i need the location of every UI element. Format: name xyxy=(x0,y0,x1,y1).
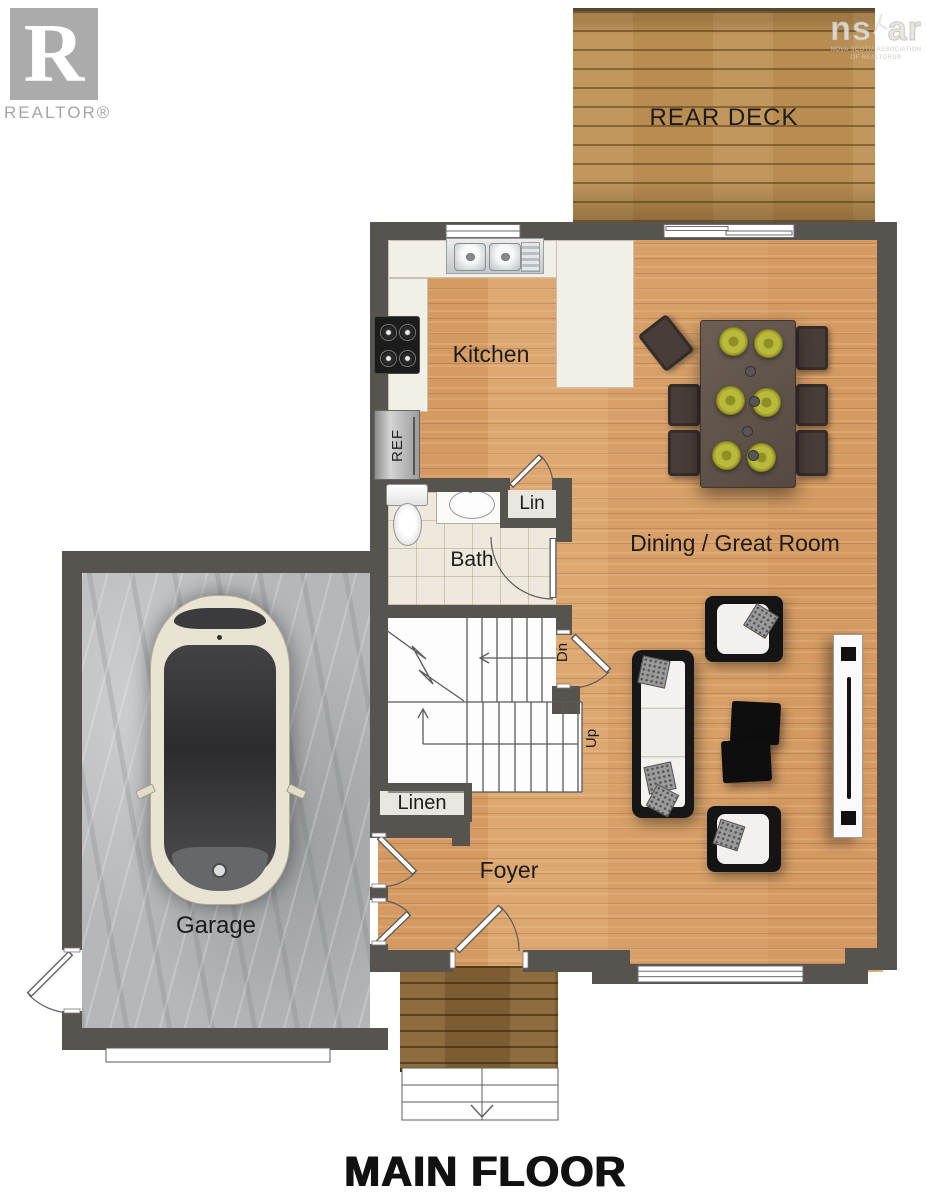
nsar-ns: ns xyxy=(830,10,872,48)
stairs-up-arrow-icon xyxy=(418,709,578,744)
floor-plan: R REALTOR® REAR DECK nsar NOVA SCOTIA AS… xyxy=(0,0,927,1200)
stairs-down-arrow-icon xyxy=(480,653,556,663)
stairs-up-label: Up xyxy=(578,730,606,764)
nsar-caption-1: NOVA SCOTIA ASSOCIATION xyxy=(826,47,926,54)
doors xyxy=(29,456,609,1013)
plan-linework xyxy=(0,0,927,1200)
room-label-dining-great-room: Dining / Great Room xyxy=(620,530,850,557)
stairs-down-label: Dn xyxy=(549,644,577,678)
nsar-caption-2: OF REALTORS® xyxy=(826,55,926,62)
greatroom-window xyxy=(638,966,803,982)
room-label-garage: Garage xyxy=(156,912,276,940)
garage-door xyxy=(106,1048,330,1062)
kitchen-window xyxy=(446,225,520,238)
front-door xyxy=(457,907,519,951)
nsar-logo: nsar xyxy=(826,12,926,46)
room-label-linen: Linen xyxy=(380,792,464,815)
realtor-logo: R xyxy=(10,8,98,100)
garage-side-door xyxy=(29,953,71,1013)
realtor-monogram-icon: R xyxy=(24,10,85,98)
realtor-wordmark: REALTOR® xyxy=(4,103,119,123)
garage-entry-door-a xyxy=(378,837,415,887)
room-label-foyer: Foyer xyxy=(449,857,569,884)
front-porch-steps xyxy=(402,1068,558,1120)
nsar-watermark: nsar NOVA SCOTIA ASSOCIATION OF REALTORS… xyxy=(826,12,926,62)
room-label-kitchen: Kitchen xyxy=(426,341,556,368)
room-label-lin: Lin xyxy=(508,493,556,515)
stair-break-line xyxy=(382,627,464,701)
room-label-rear-deck: REAR DECK xyxy=(573,104,875,132)
door-jambs xyxy=(64,630,570,1013)
room-label-bath: Bath xyxy=(432,548,512,572)
garage-entry-door-b xyxy=(378,900,409,943)
nsar-bolt-icon xyxy=(872,12,888,36)
page-title: MAIN FLOOR xyxy=(22,1148,927,1197)
nsar-ar: ar xyxy=(888,10,922,48)
stair-door xyxy=(572,636,609,688)
lin-closet-door xyxy=(511,456,553,486)
sliding-door xyxy=(664,225,794,238)
